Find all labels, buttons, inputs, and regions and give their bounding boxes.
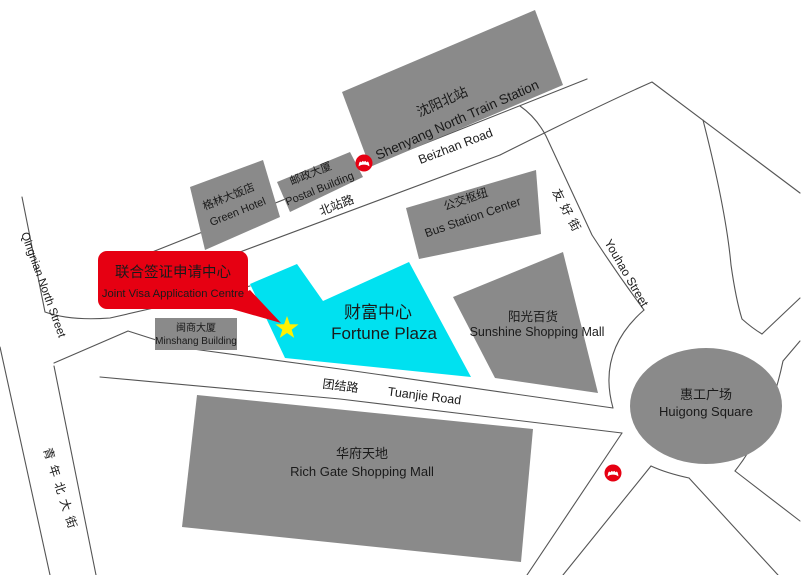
minshang-building-label-en: Minshang Building — [155, 336, 237, 347]
metro-icon — [356, 155, 373, 172]
huigong-square-label-en: Huigong Square — [659, 404, 753, 419]
youhao-street-label-en: Youhao Street — [601, 237, 651, 310]
visa-centre-location-map: 沈阳北站 Shenyang North Train Station 格林大饭店 … — [0, 0, 801, 575]
sunshine-mall-label-en: Sunshine Shopping Mall — [470, 325, 605, 339]
road-southwest-exit-edge2 — [563, 466, 651, 575]
road-east-exit-edge2 — [783, 341, 800, 361]
huigong-square-label-zh: 惠工广场 — [680, 387, 732, 402]
road-east-exit-edge1 — [762, 298, 800, 334]
callout-title-en: Joint Visa Application Centre — [102, 288, 244, 300]
road-youhao-east-edge — [703, 120, 742, 319]
road-southeast-exit-edge2 — [735, 471, 800, 521]
youhao-street-label-zh: 友好街 — [549, 186, 585, 238]
qingnian-street-label-en: Qingnian North Street — [18, 231, 68, 340]
qingnian-street-label-zh: 青年北大街 — [40, 446, 81, 536]
sunshine-mall-label-zh: 阳光百货 — [508, 309, 558, 324]
road-southwest-exit-edge1 — [527, 433, 622, 575]
rich-gate-label-en: Rich Gate Shopping Mall — [290, 464, 434, 479]
callout-title-zh: 联合签证申请中心 — [115, 264, 231, 281]
tuanjie-road-label-zh: 团结路 — [322, 376, 360, 395]
rich-gate-label-zh: 华府天地 — [336, 446, 388, 461]
roundabout-outer-arc-top — [742, 319, 762, 334]
road-southeast-exit-edge1 — [689, 478, 778, 575]
fortune-plaza-label-zh: 财富中心 — [344, 303, 412, 322]
road-topright-edge — [500, 82, 800, 193]
road-qingnian-west-edge — [0, 347, 50, 575]
roundabout-outer-arc-bottom — [651, 466, 689, 478]
fortune-plaza-label-en: Fortune Plaza — [331, 324, 437, 343]
minshang-building-label-zh: 闽商大厦 — [176, 321, 216, 334]
metro-icon — [605, 465, 622, 482]
tuanjie-road-label-en: Tuanjie Road — [387, 385, 462, 408]
